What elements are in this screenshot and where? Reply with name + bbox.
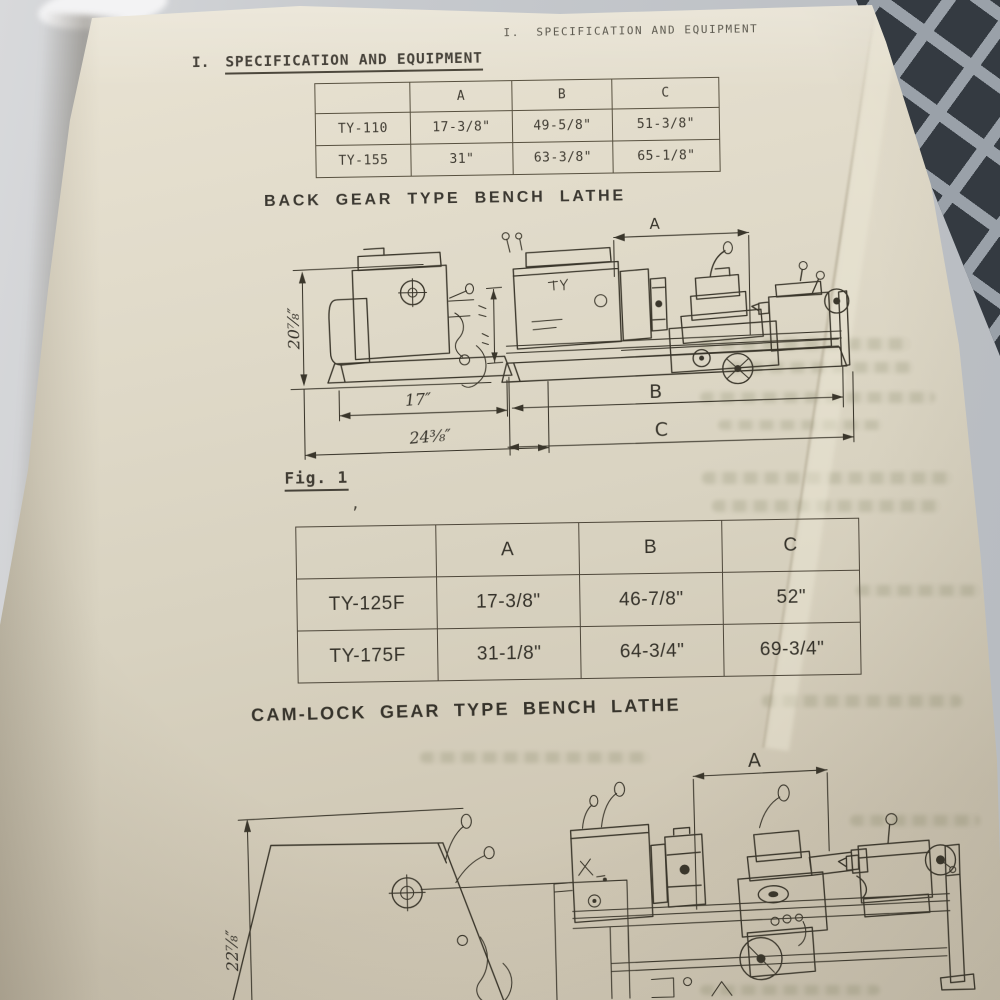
section-index: I. — [192, 55, 210, 75]
spec-table-cam-lock: A B C TY-125F 17-3/8" 46-7/8" 52" TY-175… — [295, 518, 861, 684]
manual-page: I. SPECIFICATION AND EQUIPMENT I. SPECIF… — [0, 0, 1000, 1000]
page-content: I. SPECIFICATION AND EQUIPMENT I. SPECIF… — [0, 0, 1000, 1000]
back-gear-lathe-drawing: A 20⅞″ 17″ 24⅜″ B C — [278, 210, 862, 469]
spec-cell: 69-3/4" — [723, 622, 861, 676]
model-cell: TY-175F — [297, 629, 438, 683]
model-cell: TY-125F — [297, 577, 438, 631]
dim-label-a: A — [748, 750, 762, 772]
spec-cell: 51-3/8" — [612, 107, 719, 141]
photo-of-manual-page: I. SPECIFICATION AND EQUIPMENT I. SPECIF… — [0, 0, 1000, 1000]
dim-label-24: 24⅜″ — [408, 425, 452, 448]
spec-cell: 31" — [411, 143, 513, 177]
dim-label-17: 17″ — [404, 389, 432, 410]
spec-cell: 63-3/8" — [513, 141, 613, 175]
dim-label-height: 20⅞″ — [284, 307, 304, 350]
spec-cell: 49-5/8" — [512, 109, 612, 143]
corner-cell — [296, 525, 437, 579]
col-header: A — [436, 523, 580, 577]
spec-cell: 52" — [722, 570, 860, 624]
running-header: I. SPECIFICATION AND EQUIPMENT — [503, 22, 758, 39]
dim-label-height: 22⅞″ — [222, 929, 242, 972]
table-row: TY-125F 17-3/8" 46-7/8" 52" — [297, 570, 861, 631]
spec-table-back-gear: A B C TY-110 17-3/8" 49-5/8" 51-3/8" TY-… — [314, 77, 720, 178]
back-gear-heading: BACK GEAR TYPE BENCH LATHE — [264, 187, 626, 211]
table-row: TY-175F 31-1/8" 64-3/4" 69-3/4" — [297, 622, 861, 683]
col-header: C — [612, 77, 719, 109]
cam-lock-heading: CAM-LOCK GEAR TYPE BENCH LATHE — [251, 695, 681, 726]
spec-cell: 65-1/8" — [613, 139, 720, 173]
col-header: C — [722, 518, 860, 572]
dim-label-c: C — [655, 419, 669, 441]
model-cell: TY-155 — [316, 144, 411, 177]
dim-label-a: A — [649, 215, 660, 233]
corner-cell — [315, 82, 410, 113]
spec-cell: 64-3/4" — [580, 624, 724, 678]
figure-caption: Fig. 1 — [284, 468, 348, 492]
col-header: B — [579, 520, 723, 574]
table-row: TY-155 31" 63-3/8" 65-1/8" — [316, 139, 720, 177]
dim-label-b: B — [649, 381, 662, 403]
section-title: SPECIFICATION AND EQUIPMENT — [225, 51, 483, 75]
spec-cell: 17-3/8" — [437, 575, 581, 629]
stray-mark: , — [351, 495, 360, 513]
spec-cell: 17-3/8" — [410, 111, 512, 145]
cam-lock-lathe-drawing: A 22⅞″ — [200, 734, 996, 1000]
col-header: A — [410, 81, 512, 113]
section-heading: I. SPECIFICATION AND EQUIPMENT — [192, 51, 483, 76]
spec-cell: 31-1/8" — [437, 627, 581, 681]
spec-cell: 46-7/8" — [580, 572, 724, 626]
model-cell: TY-110 — [315, 112, 410, 145]
col-header: B — [512, 79, 612, 111]
table-header-row: A B C — [296, 518, 860, 579]
